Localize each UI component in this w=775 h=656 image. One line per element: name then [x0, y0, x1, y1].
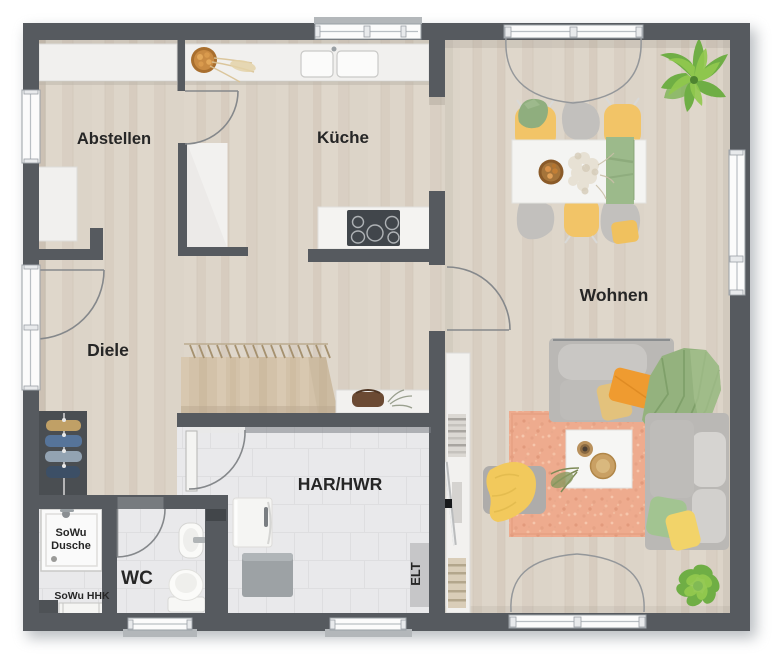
svg-text:ELT: ELT	[408, 562, 423, 586]
svg-text:Abstellen: Abstellen	[77, 130, 151, 148]
svg-text:Wohnen: Wohnen	[580, 285, 649, 305]
svg-text:Diele: Diele	[87, 340, 129, 360]
svg-text:SoWu HHK: SoWu HHK	[54, 590, 110, 602]
svg-text:Küche: Küche	[317, 128, 369, 147]
svg-text:SoWu: SoWu	[56, 527, 87, 539]
svg-text:Dusche: Dusche	[51, 540, 91, 552]
svg-text:HAR/HWR: HAR/HWR	[298, 474, 383, 494]
svg-text:WC: WC	[121, 568, 153, 589]
